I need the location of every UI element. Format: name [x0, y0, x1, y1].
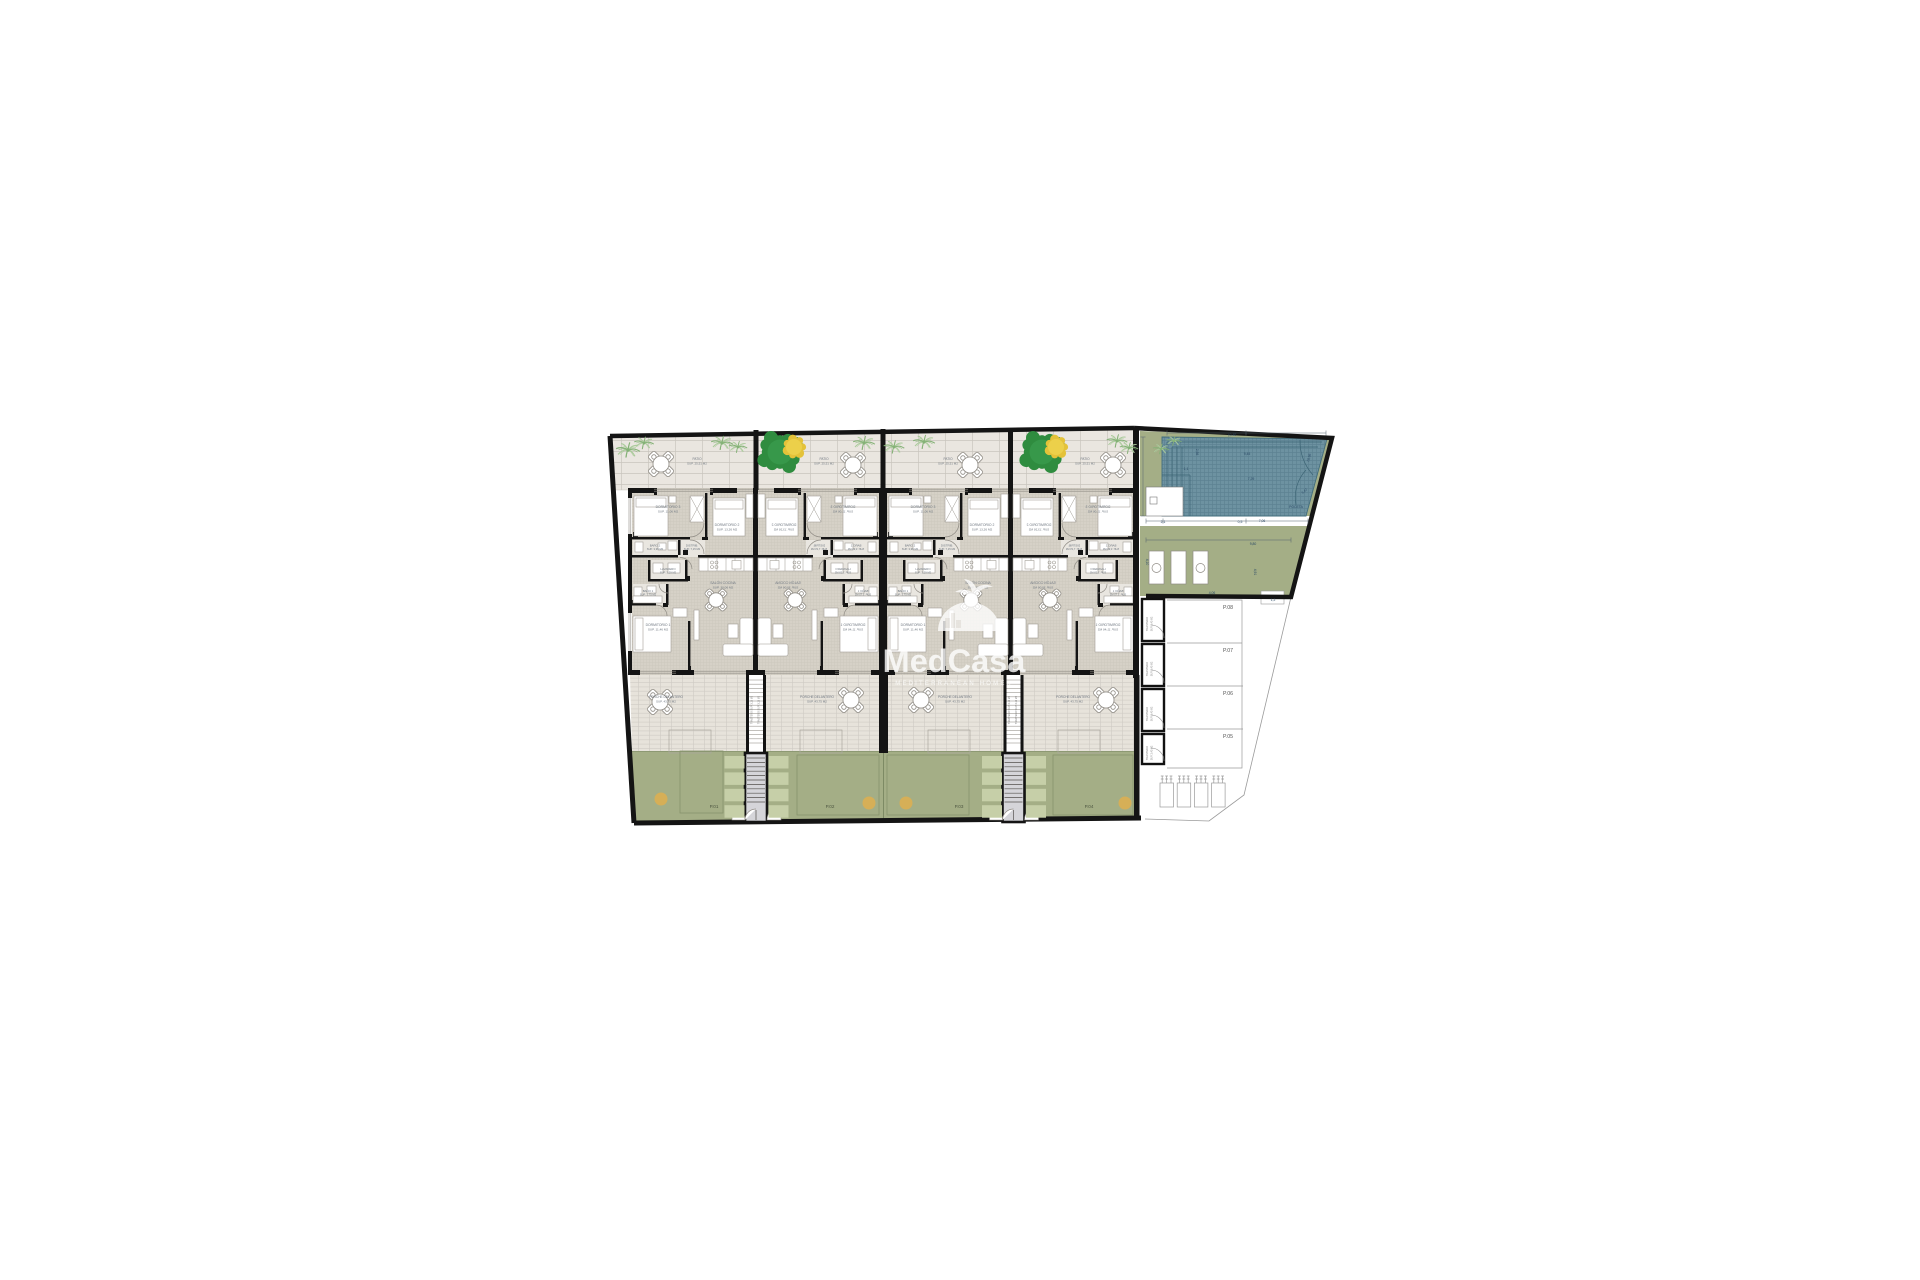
svg-text:SUP. 43,75 M2: SUP. 43,75 M2 — [1063, 700, 1083, 704]
svg-text:1,2: 1,2 — [1271, 598, 1276, 602]
svg-text:9,80: 9,80 — [1250, 542, 1257, 546]
svg-text:P.06: P.06 — [1223, 691, 1233, 697]
svg-text:PATIO: PATIO — [1080, 457, 1090, 461]
svg-text:7,06: 7,06 — [1259, 519, 1266, 523]
svg-text:TRASTERO SUP. 3,13 M2: TRASTERO SUP. 3,13 M2 — [1015, 695, 1018, 724]
svg-text:TRASTERO SUP. 3,13 M2: TRASTERO SUP. 3,13 M2 — [1008, 695, 1011, 724]
svg-text:SUP. 25,51 M2: SUP. 25,51 M2 — [1075, 462, 1095, 466]
svg-text:POCETA: POCETA — [1289, 505, 1303, 509]
svg-text:P.02: P.02 — [826, 804, 835, 809]
svg-text:4,91: 4,91 — [1253, 569, 1257, 576]
svg-text:SUP. 2,43 M2: SUP. 2,43 M2 — [1151, 661, 1154, 676]
svg-text:PORCHE DELANTERO: PORCHE DELANTERO — [649, 695, 684, 699]
svg-text:0,5: 0,5 — [1238, 520, 1243, 524]
svg-text:SUP. 25,51 M2: SUP. 25,51 M2 — [814, 462, 834, 466]
svg-text:9,45: 9,45 — [1244, 452, 1251, 456]
svg-text:TRASTERO SUP. 3,13 M2: TRASTERO SUP. 3,13 M2 — [751, 695, 754, 724]
svg-text:PATIO: PATIO — [943, 457, 953, 461]
svg-text:PORCHE DELANTERO: PORCHE DELANTERO — [800, 695, 835, 699]
svg-text:SUP. 25,51 M2: SUP. 25,51 M2 — [938, 462, 958, 466]
svg-text:P.05: P.05 — [1223, 734, 1233, 740]
svg-text:2,98: 2,98 — [1195, 449, 1199, 456]
svg-text:SUP. 2,43 M2: SUP. 2,43 M2 — [1151, 706, 1154, 721]
svg-text:TRASTERO: TRASTERO — [1145, 617, 1149, 631]
svg-text:10,40: 10,40 — [1228, 433, 1237, 437]
svg-text:4,06: 4,06 — [1209, 591, 1216, 595]
svg-text:2,1: 2,1 — [1161, 520, 1166, 524]
svg-text:PATIO: PATIO — [819, 457, 829, 461]
svg-text:SUP. 2,43 M2: SUP. 2,43 M2 — [1151, 745, 1154, 760]
svg-text:TRASTERO: TRASTERO — [1145, 746, 1149, 760]
svg-text:SUP. 43,75 M2: SUP. 43,75 M2 — [945, 700, 965, 704]
svg-text:TRASTERO: TRASTERO — [1145, 662, 1149, 676]
svg-text:SUP. 43,75 M2: SUP. 43,75 M2 — [807, 700, 827, 704]
svg-text:PORCHE DELANTERO: PORCHE DELANTERO — [1056, 695, 1091, 699]
svg-text:7,29: 7,29 — [1248, 477, 1255, 481]
svg-text:SUP. 25,51 M2: SUP. 25,51 M2 — [687, 462, 707, 466]
svg-text:TRASTERO SUP. 3,13 M2: TRASTERO SUP. 3,13 M2 — [758, 695, 761, 724]
svg-text:P.04: P.04 — [1085, 804, 1094, 809]
svg-text:MEDITERRANEAN HOMES: MEDITERRANEAN HOMES — [895, 681, 1012, 687]
svg-text:TRASTERO: TRASTERO — [1145, 707, 1149, 721]
svg-text:MedCasa: MedCasa — [883, 643, 1027, 679]
svg-text:PORCHE DELANTERO: PORCHE DELANTERO — [938, 695, 973, 699]
svg-text:PATIO: PATIO — [692, 457, 702, 461]
svg-text:P.03: P.03 — [955, 804, 964, 809]
svg-text:SUP. 43,75 M2: SUP. 43,75 M2 — [656, 700, 676, 704]
svg-text:1,1: 1,1 — [1184, 467, 1189, 471]
svg-text:P.07: P.07 — [1223, 648, 1233, 654]
svg-text:SUP. 2,43 M2: SUP. 2,43 M2 — [1151, 616, 1154, 631]
svg-text:P.01: P.01 — [710, 804, 719, 809]
svg-text:P.08: P.08 — [1223, 605, 1233, 611]
svg-text:4,10: 4,10 — [1145, 559, 1149, 566]
